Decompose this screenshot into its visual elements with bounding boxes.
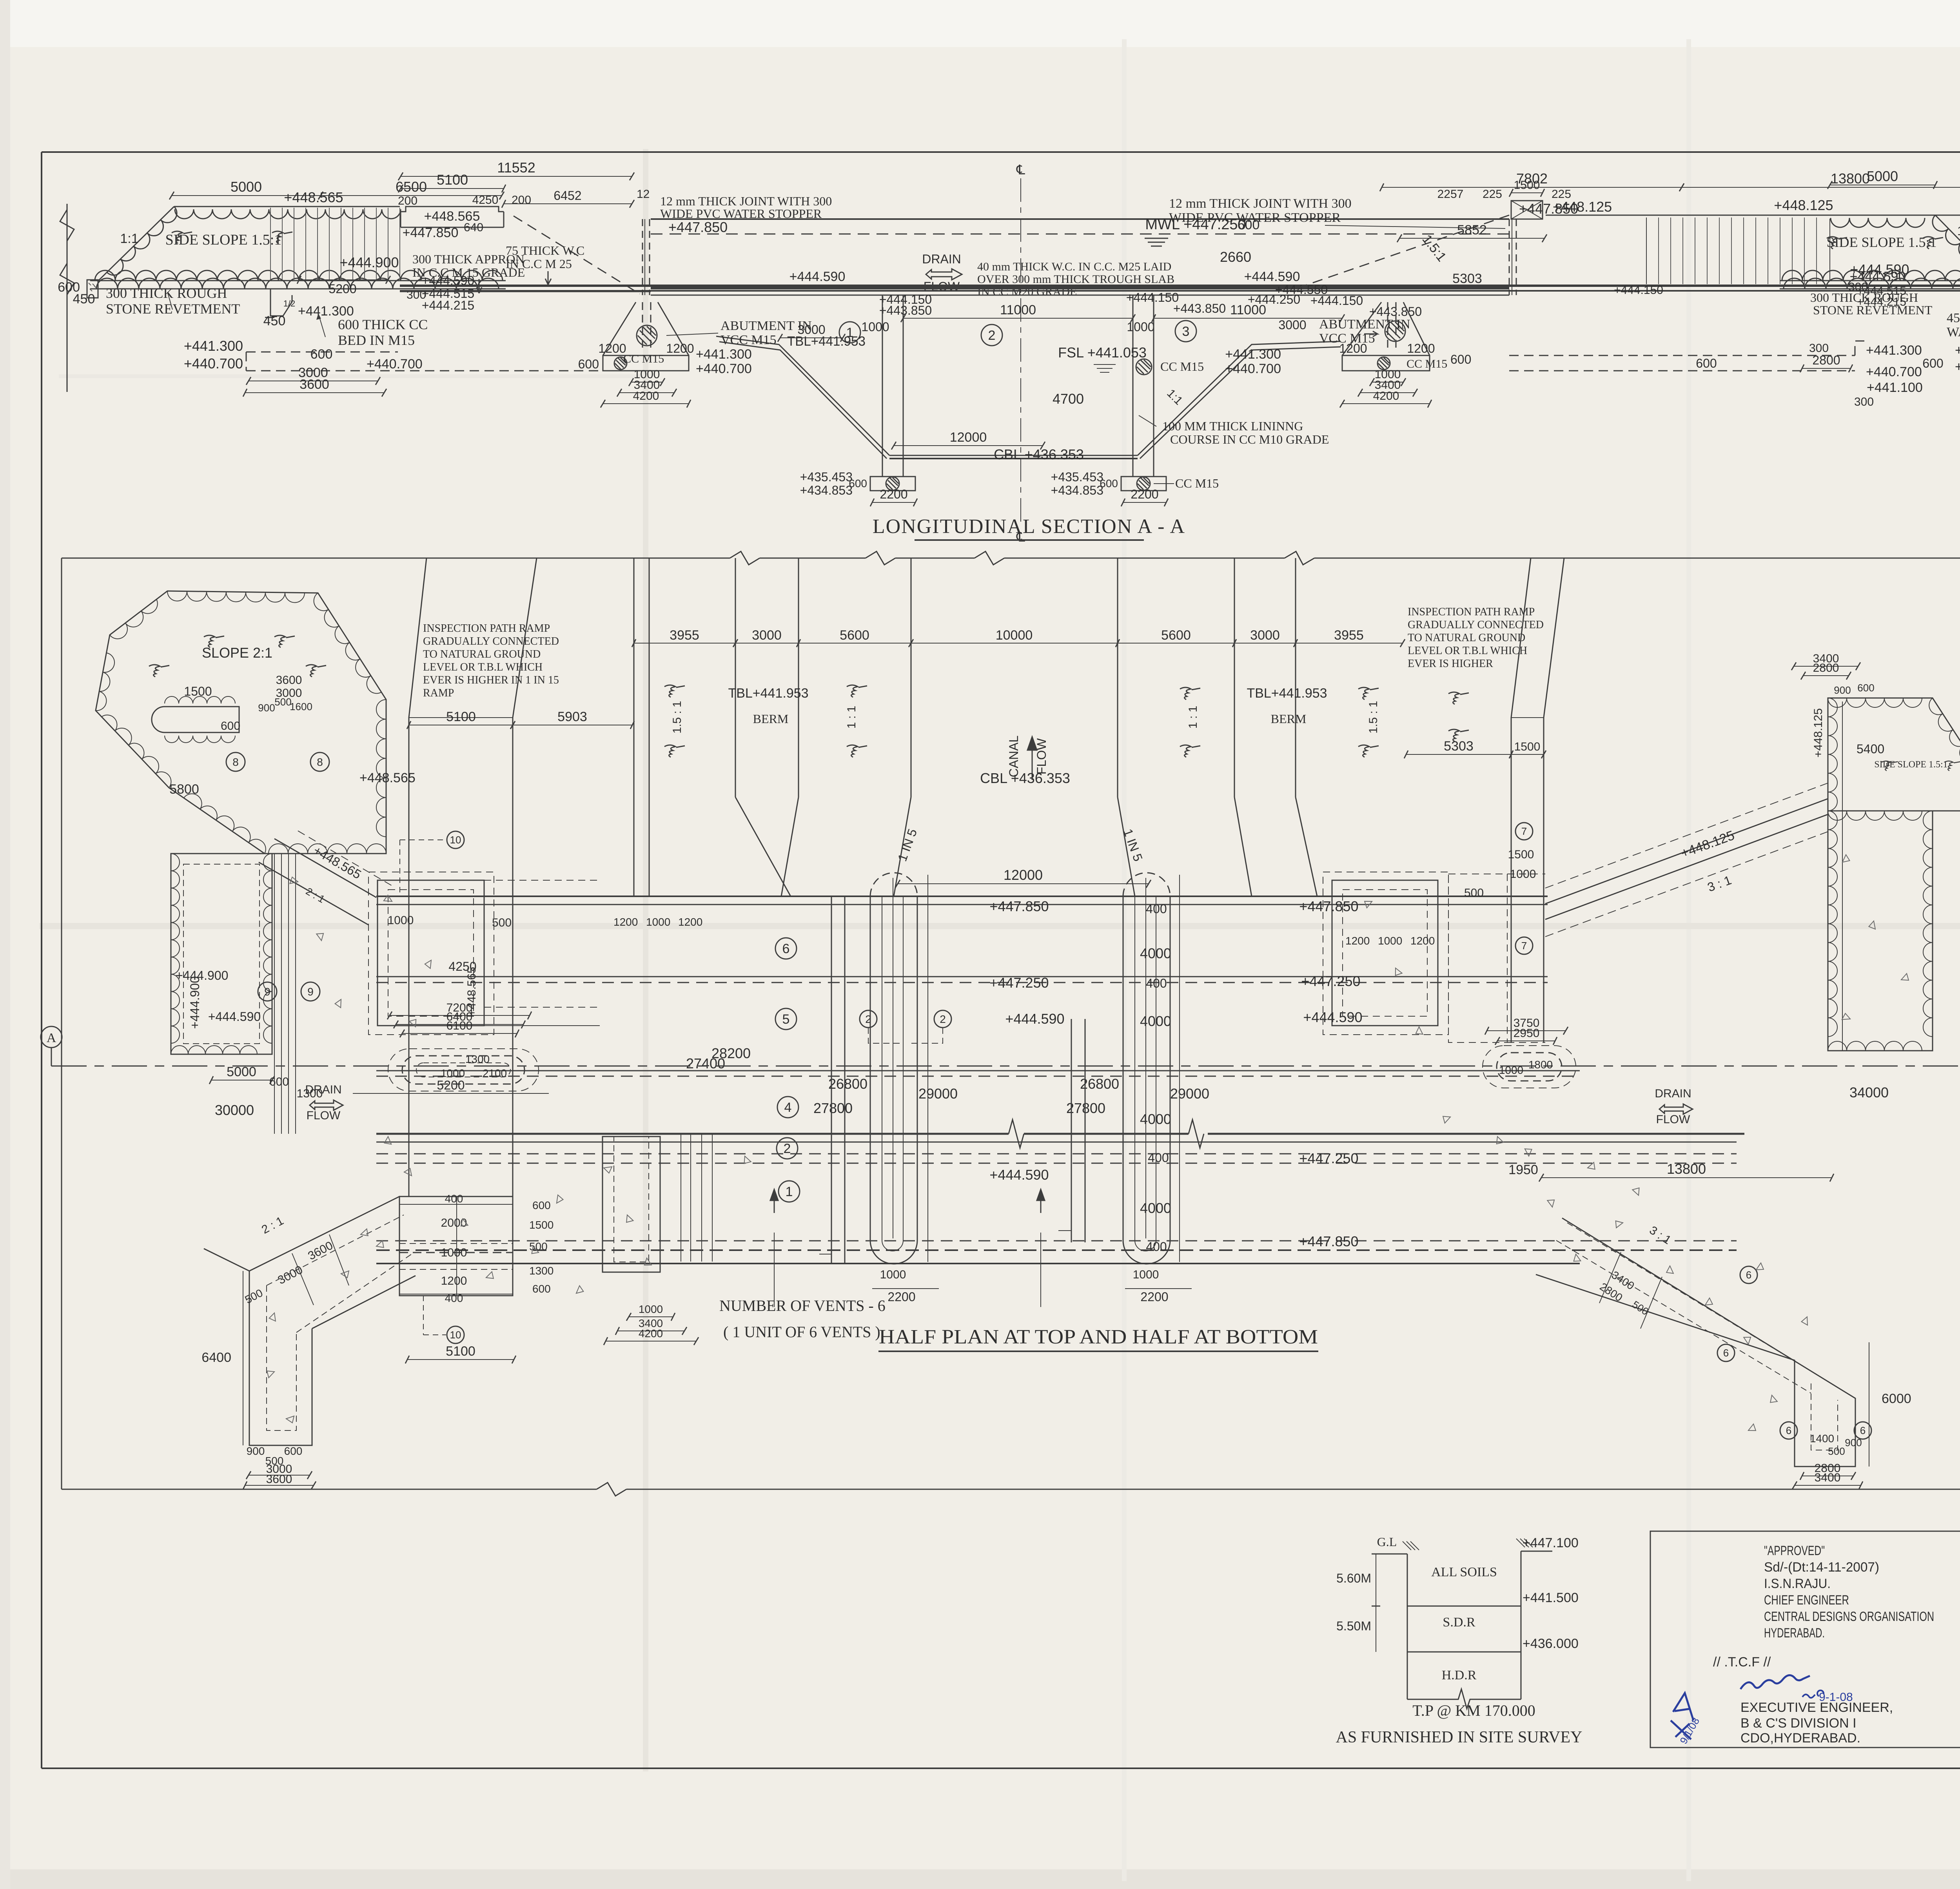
svg-text:COURSE IN CC M10 GRADE: COURSE IN CC M10 GRADE [1170, 432, 1329, 446]
svg-text:1500: 1500 [184, 684, 212, 698]
svg-text:1300: 1300 [529, 1265, 554, 1277]
svg-text:1 : 1: 1 : 1 [845, 706, 858, 729]
svg-text:1000: 1000 [880, 1268, 906, 1281]
svg-text:1500: 1500 [529, 1219, 554, 1231]
svg-text:+441.300: +441.300 [184, 338, 243, 354]
svg-text:10: 10 [450, 1329, 461, 1341]
svg-text:5.60M: 5.60M [1336, 1571, 1371, 1585]
svg-text:5000: 5000 [227, 1064, 256, 1079]
svg-text:600: 600 [269, 1075, 289, 1088]
svg-text:CC M15: CC M15 [1175, 476, 1219, 490]
svg-text:2660: 2660 [1220, 249, 1251, 265]
svg-text:1500: 1500 [1514, 740, 1541, 753]
svg-text:12000: 12000 [1004, 867, 1043, 883]
svg-text:600: 600 [578, 357, 599, 371]
svg-text:5: 5 [782, 1012, 790, 1027]
svg-text:LEVEL OR T.B.L WHICH: LEVEL OR T.B.L WHICH [423, 661, 543, 673]
svg-text:+447.850: +447.850 [1299, 898, 1358, 914]
svg-text:INSPECTION PATH RAMP: INSPECTION PATH RAMP [423, 622, 550, 635]
svg-text:1.5 : 1: 1.5 : 1 [671, 701, 684, 733]
svg-text:1:1: 1:1 [1957, 224, 1960, 238]
svg-text:1000: 1000 [861, 320, 889, 334]
svg-text:8: 8 [232, 756, 239, 768]
svg-text:10: 10 [450, 834, 461, 846]
svg-text:3600: 3600 [276, 674, 302, 687]
svg-text:OVER 300 mm THICK TROUGH SLAB: OVER 300 mm THICK TROUGH SLAB [977, 273, 1174, 286]
svg-text:400: 400 [1148, 1151, 1169, 1165]
svg-text:+448.125: +448.125 [1774, 197, 1833, 213]
svg-text:1000: 1000 [1378, 935, 1402, 947]
svg-text:1200: 1200 [666, 341, 694, 355]
svg-text:600: 600 [1922, 356, 1943, 370]
svg-text:SIDE SLOPE 1.5:1: SIDE SLOPE 1.5:1 [165, 232, 282, 248]
svg-text:+448.565: +448.565 [284, 189, 343, 205]
svg-text:FLOW: FLOW [1034, 738, 1049, 774]
svg-text:600: 600 [284, 1445, 303, 1457]
svg-text:5303: 5303 [1444, 739, 1474, 754]
svg-text:4200: 4200 [639, 1327, 663, 1340]
svg-text:LONGITUDINAL SECTION A - A: LONGITUDINAL SECTION A - A [873, 515, 1185, 538]
svg-text:+444.590: +444.590 [989, 1167, 1049, 1183]
svg-text:26800: 26800 [1080, 1076, 1119, 1092]
svg-text:FLOW: FLOW [307, 1109, 341, 1122]
svg-text:CC M15: CC M15 [623, 352, 664, 365]
svg-text:4700: 4700 [1053, 391, 1084, 407]
svg-text:4250: 4250 [472, 194, 499, 207]
svg-text:3000: 3000 [1250, 628, 1280, 643]
svg-text:// .T.C.F //: // .T.C.F // [1713, 1655, 1771, 1670]
svg-text:500: 500 [1464, 886, 1484, 899]
svg-text:BED IN M15: BED IN M15 [338, 332, 415, 348]
svg-text:5800: 5800 [169, 782, 199, 797]
svg-text:1300: 1300 [465, 1053, 490, 1065]
svg-text:6: 6 [1786, 1425, 1791, 1436]
svg-text:1500: 1500 [1508, 848, 1534, 861]
svg-text:ABUTMENT IN: ABUTMENT IN [720, 319, 812, 333]
svg-text:26800: 26800 [828, 1076, 867, 1092]
svg-text:SLOPE 2:1: SLOPE 2:1 [202, 645, 272, 661]
svg-text:+447.100: +447.100 [1523, 1535, 1579, 1550]
svg-text:VCC M15: VCC M15 [720, 333, 777, 347]
svg-text:+440.700: +440.700 [367, 357, 423, 372]
svg-text:1000: 1000 [639, 1303, 663, 1315]
svg-text:6100: 6100 [446, 1019, 473, 1032]
svg-text:1200: 1200 [598, 341, 626, 355]
svg-text:1200: 1200 [1410, 935, 1435, 947]
svg-text:450: 450 [73, 292, 95, 306]
svg-text:3955: 3955 [670, 628, 699, 643]
svg-text:+440.700: +440.700 [184, 355, 243, 372]
svg-text:1300: 1300 [297, 1087, 323, 1100]
svg-text:7: 7 [1521, 825, 1527, 837]
svg-text:1000: 1000 [441, 1067, 465, 1079]
svg-text:+440.700: +440.700 [1225, 361, 1281, 376]
svg-text:2200: 2200 [1131, 487, 1158, 501]
svg-text:+435.453: +435.453 [800, 470, 853, 484]
svg-text:600: 600 [310, 347, 333, 362]
svg-text:2000: 2000 [441, 1216, 467, 1229]
svg-text:Sd/-(Dt:14-11-2007): Sd/-(Dt:14-11-2007) [1764, 1560, 1879, 1575]
svg-text:900: 900 [247, 1445, 265, 1457]
svg-text:600: 600 [532, 1199, 551, 1211]
svg-text:1000: 1000 [1133, 1268, 1159, 1281]
svg-text:900: 900 [258, 702, 275, 714]
svg-text:+441.300: +441.300 [1955, 343, 1960, 358]
svg-text:1:1: 1:1 [120, 231, 138, 246]
svg-text:AS FURNISHED IN SITE SURVEY: AS FURNISHED IN SITE SURVEY [1336, 1728, 1582, 1746]
svg-text:5600: 5600 [1161, 628, 1191, 643]
svg-text:ABUTMENT IN: ABUTMENT IN [1319, 317, 1410, 332]
svg-text:+441.300: +441.300 [1866, 343, 1922, 358]
svg-text:2950: 2950 [1514, 1027, 1540, 1040]
svg-text:5100: 5100 [446, 709, 476, 724]
svg-text:G.L: G.L [1377, 1535, 1397, 1549]
svg-text:2200: 2200 [1140, 1290, 1168, 1304]
svg-text:+447.850: +447.850 [989, 898, 1049, 914]
svg-text:2800: 2800 [1813, 662, 1839, 674]
svg-text:SIDE SLOPE 1.5:1: SIDE SLOPE 1.5:1 [1826, 234, 1936, 250]
svg-text:+444.590: +444.590 [208, 1010, 261, 1024]
svg-text:+444.150: +444.150 [1126, 290, 1179, 305]
svg-text:LEVEL OR T.B.L WHICH: LEVEL OR T.B.L WHICH [1408, 645, 1527, 657]
svg-text:+444.900: +444.900 [188, 976, 202, 1029]
svg-text:1200: 1200 [1407, 341, 1435, 355]
svg-text:6500: 6500 [396, 179, 427, 195]
svg-text:11000: 11000 [1230, 303, 1266, 317]
svg-text:4200: 4200 [1373, 390, 1399, 402]
svg-text:IN C.C M 25: IN C.C M 25 [506, 257, 572, 271]
svg-text:INSPECTION PATH RAMP: INSPECTION PATH RAMP [1408, 606, 1535, 618]
svg-text:11552: 11552 [497, 160, 535, 176]
svg-text:6000: 6000 [1882, 1391, 1911, 1406]
svg-text:2: 2 [940, 1013, 946, 1025]
svg-text:+444.590: +444.590 [1303, 1009, 1362, 1025]
svg-text:5852: 5852 [1457, 223, 1487, 237]
svg-text:12 mm THICK JOINT WITH 300: 12 mm THICK JOINT WITH 300 [1169, 196, 1352, 211]
svg-text:+447.850: +447.850 [1299, 1233, 1358, 1249]
svg-text:1200: 1200 [1345, 935, 1370, 947]
svg-text:6452: 6452 [554, 189, 581, 203]
svg-text:1200: 1200 [1339, 341, 1367, 355]
svg-text:STONE REVETMENT: STONE REVETMENT [1813, 303, 1933, 317]
svg-text:5600: 5600 [840, 628, 869, 643]
svg-text:2100: 2100 [483, 1067, 507, 1079]
svg-text:450: 450 [263, 314, 286, 328]
svg-text:+447.250: +447.250 [1299, 1150, 1358, 1166]
svg-text:3400: 3400 [1815, 1471, 1841, 1484]
svg-text:STONE REVETMENT: STONE REVETMENT [106, 301, 240, 317]
svg-text:13800: 13800 [1667, 1161, 1706, 1177]
svg-text:TBL+441.953: TBL+441.953 [728, 686, 808, 701]
svg-text:5200: 5200 [437, 1078, 465, 1092]
svg-text:1000: 1000 [441, 1246, 467, 1259]
svg-text:+447.250: +447.250 [989, 975, 1049, 991]
svg-text:5303: 5303 [1452, 271, 1482, 286]
svg-text:NUMBER OF VENTS - 6: NUMBER OF VENTS - 6 [719, 1297, 886, 1314]
svg-text:2: 2 [784, 1141, 791, 1156]
svg-text:500: 500 [1828, 1445, 1845, 1457]
svg-text:40 mm THICK W.C. IN C.C. M25 L: 40 mm THICK W.C. IN C.C. M25 LAID [977, 260, 1171, 273]
svg-text:+440.700: +440.700 [1866, 364, 1922, 379]
svg-text:+444.900: +444.900 [176, 968, 228, 983]
svg-text:900: 900 [1834, 684, 1851, 696]
svg-text:+434.853: +434.853 [1051, 483, 1103, 497]
svg-text:B & C'S DIVISION I: B & C'S DIVISION I [1740, 1716, 1857, 1731]
svg-text:CENTRAL DESIGNS ORGANISATION: CENTRAL DESIGNS ORGANISATION [1764, 1609, 1934, 1624]
svg-text:500: 500 [492, 916, 512, 929]
svg-text:600 THICK CC: 600 THICK CC [338, 317, 428, 332]
svg-text:7: 7 [1521, 940, 1527, 952]
svg-text:+441.100: +441.100 [1867, 380, 1923, 395]
svg-text:DRAIN: DRAIN [922, 252, 961, 266]
svg-text:300 THICK ROUGH: 300 THICK ROUGH [106, 285, 227, 301]
svg-text:3955: 3955 [1334, 628, 1364, 643]
svg-text:+444.590: +444.590 [789, 269, 846, 284]
svg-text:600: 600 [849, 477, 867, 489]
svg-text:1200: 1200 [441, 1274, 467, 1287]
svg-text:1950: 1950 [1508, 1162, 1538, 1177]
svg-text:+440.700: +440.700 [1955, 359, 1960, 374]
svg-text:5000: 5000 [230, 179, 262, 195]
svg-text:5100: 5100 [437, 172, 468, 188]
svg-text:8: 8 [317, 756, 323, 768]
svg-text:7802: 7802 [1516, 170, 1548, 187]
svg-text:( 1 UNIT OF 6 VENTS ): ( 1 UNIT OF 6 VENTS ) [723, 1323, 880, 1341]
svg-text:+436.000: +436.000 [1523, 1636, 1579, 1651]
svg-text:500: 500 [274, 696, 291, 708]
svg-text:12: 12 [637, 188, 650, 201]
svg-text:6: 6 [1746, 1269, 1751, 1281]
svg-text:450x600 CUT-OFF: 450x600 CUT-OFF [1947, 311, 1960, 325]
svg-text:5400: 5400 [1857, 742, 1884, 756]
svg-text:6: 6 [1860, 1425, 1866, 1436]
svg-text:27800: 27800 [1066, 1100, 1105, 1116]
svg-text:600: 600 [1696, 356, 1717, 370]
svg-text:30000: 30000 [215, 1102, 254, 1118]
svg-text:1600: 1600 [290, 701, 312, 712]
svg-text:1800: 1800 [1528, 1059, 1553, 1071]
svg-text:+441.300: +441.300 [696, 347, 752, 362]
svg-text:1: 1 [786, 1184, 793, 1199]
svg-text:1200: 1200 [613, 916, 638, 928]
svg-text:+448.125: +448.125 [1812, 708, 1825, 758]
svg-text:12000: 12000 [950, 430, 987, 445]
svg-text:1200: 1200 [678, 916, 702, 928]
svg-text:3600: 3600 [266, 1473, 292, 1486]
svg-text:600: 600 [1100, 477, 1118, 489]
svg-text:2: 2 [988, 328, 996, 343]
svg-text:200: 200 [398, 194, 417, 207]
svg-text:400: 400 [445, 1292, 463, 1304]
svg-text:I.S.N.RAJU.: I.S.N.RAJU. [1764, 1576, 1831, 1591]
svg-text:29000: 29000 [1170, 1086, 1209, 1102]
svg-text:1000: 1000 [1499, 1064, 1523, 1076]
svg-text:EVER IS HIGHER IN 1 IN 15: EVER IS HIGHER IN 1 IN 15 [423, 674, 559, 686]
svg-text:13800: 13800 [1831, 170, 1870, 187]
svg-text:ALL SOILS: ALL SOILS [1431, 1565, 1497, 1579]
svg-text:CBL +436.353: CBL +436.353 [994, 446, 1084, 462]
svg-text:+444.150: +444.150 [1310, 294, 1363, 308]
svg-text:+444.590: +444.590 [1244, 269, 1300, 284]
svg-text:T.P @ KM 170.000: T.P @ KM 170.000 [1412, 1702, 1535, 1719]
svg-text:+435.453: +435.453 [1051, 470, 1103, 484]
svg-text:+444.150: +444.150 [1614, 284, 1663, 297]
svg-text:3600: 3600 [299, 377, 329, 392]
svg-text:RAMP: RAMP [423, 687, 454, 699]
svg-text:3: 3 [1182, 324, 1190, 339]
svg-text:640: 640 [464, 221, 483, 234]
svg-text:5100: 5100 [446, 1344, 475, 1359]
svg-text:FLOW: FLOW [1656, 1113, 1690, 1126]
svg-text:TO NATURAL GROUND: TO NATURAL GROUND [1408, 632, 1525, 644]
svg-text:1000: 1000 [646, 916, 670, 928]
svg-text:6400: 6400 [201, 1350, 231, 1365]
svg-text:BERM: BERM [1271, 712, 1307, 726]
svg-text:DRAIN: DRAIN [1655, 1087, 1691, 1100]
svg-text:BERM: BERM [753, 712, 789, 726]
svg-text:+444.590: +444.590 [1850, 261, 1909, 277]
svg-text:+440.700: +440.700 [696, 361, 752, 376]
svg-text:300: 300 [1809, 342, 1829, 355]
svg-text:300 THICK ROUGH: 300 THICK ROUGH [1810, 290, 1918, 305]
svg-text:H.D.R: H.D.R [1442, 1668, 1477, 1682]
svg-text:+443.850: +443.850 [1173, 301, 1226, 315]
svg-text:TBL+441.953: TBL+441.953 [1247, 686, 1327, 701]
svg-text:5200: 5200 [328, 282, 356, 296]
svg-text:2200: 2200 [880, 487, 907, 501]
svg-text:6: 6 [782, 941, 790, 956]
svg-text:2800: 2800 [1812, 353, 1840, 367]
svg-text:12 mm THICK JOINT WITH 300: 12 mm THICK JOINT WITH 300 [660, 194, 832, 208]
svg-text:+448.565: +448.565 [359, 770, 416, 785]
svg-text:1000: 1000 [1127, 320, 1154, 334]
svg-text:1000: 1000 [388, 914, 414, 927]
svg-text:+444.590: +444.590 [1005, 1011, 1064, 1027]
svg-text:+441.300: +441.300 [1225, 347, 1281, 362]
svg-text:600: 600 [532, 1283, 551, 1295]
svg-text:WIDE PVC WATER STOPPER: WIDE PVC WATER STOPPER [1169, 210, 1341, 225]
svg-text:EVER IS HIGHER: EVER IS HIGHER [1408, 658, 1493, 670]
svg-text:400: 400 [1146, 1240, 1167, 1254]
svg-text:11000: 11000 [1000, 303, 1036, 317]
svg-text:300: 300 [1854, 395, 1874, 408]
svg-text:"APPROVED": "APPROVED" [1764, 1543, 1825, 1558]
svg-text:WALL IN CC M10: WALL IN CC M10 [1947, 325, 1960, 339]
svg-text:FSL +441.053: FSL +441.053 [1058, 344, 1147, 361]
svg-text:+448.125: +448.125 [1553, 199, 1612, 215]
svg-text:600: 600 [1450, 352, 1471, 366]
svg-text:27400: 27400 [686, 1055, 725, 1071]
svg-text:29000: 29000 [918, 1086, 958, 1102]
svg-text:600: 600 [1857, 682, 1874, 694]
svg-text:CC M15: CC M15 [1160, 359, 1204, 373]
svg-text:CHIEF ENGINEER: CHIEF ENGINEER [1764, 1593, 1849, 1608]
svg-text:GRADUALLY CONNECTED: GRADUALLY CONNECTED [423, 635, 559, 647]
svg-text:℄: ℄ [1016, 163, 1025, 178]
svg-text:+444.215: +444.215 [422, 298, 474, 312]
svg-text:A: A [47, 1031, 56, 1045]
svg-text:2257: 2257 [1437, 188, 1464, 201]
svg-text:5.50M: 5.50M [1336, 1619, 1371, 1633]
svg-text:100 MM THICK LININNG: 100 MM THICK LININNG [1162, 419, 1303, 433]
svg-text:5903: 5903 [557, 709, 587, 724]
svg-text:34000: 34000 [1849, 1084, 1889, 1100]
svg-text:+447.850: +447.850 [403, 225, 459, 240]
svg-text:CC M15: CC M15 [1406, 357, 1447, 370]
svg-text:+434.853: +434.853 [800, 483, 853, 497]
svg-text:2200: 2200 [887, 1290, 915, 1304]
svg-text:HALF PLAN AT TOP AND HALF AT B: HALF PLAN AT TOP AND HALF AT BOTTOM [879, 1326, 1318, 1348]
svg-text:5000: 5000 [1867, 168, 1898, 184]
svg-text:6: 6 [1723, 1347, 1729, 1359]
svg-text:S.D.R: S.D.R [1443, 1615, 1475, 1630]
svg-text:10000: 10000 [996, 628, 1033, 643]
svg-text:EXECUTIVE ENGINEER,: EXECUTIVE ENGINEER, [1740, 1700, 1893, 1715]
svg-text:CDO,HYDERABAD.: CDO,HYDERABAD. [1740, 1731, 1860, 1746]
svg-text:400: 400 [445, 1193, 463, 1205]
svg-text:+444.900: +444.900 [339, 254, 399, 270]
svg-text:1400: 1400 [1810, 1432, 1834, 1445]
svg-text:200: 200 [512, 194, 531, 207]
svg-text:+447.850: +447.850 [668, 219, 728, 235]
svg-text:HYDERABAD.: HYDERABAD. [1764, 1626, 1825, 1641]
svg-text:4200: 4200 [633, 390, 659, 402]
svg-text:CBL +436.353: CBL +436.353 [980, 770, 1070, 786]
svg-text:+447.250: +447.250 [1301, 973, 1360, 989]
svg-text:900: 900 [1845, 1437, 1862, 1448]
svg-text:1/2: 1/2 [283, 299, 296, 308]
svg-text:3000: 3000 [1278, 318, 1306, 332]
svg-text:4: 4 [784, 1100, 792, 1115]
svg-text:225: 225 [1483, 188, 1502, 201]
svg-text:+441.500: +441.500 [1523, 1590, 1579, 1605]
svg-text:9: 9 [264, 986, 270, 998]
svg-text:27800: 27800 [813, 1100, 853, 1116]
svg-text:9: 9 [307, 986, 314, 998]
svg-text:1.5 : 1: 1.5 : 1 [1367, 701, 1380, 733]
svg-text:3000: 3000 [752, 628, 782, 643]
svg-text:75 THICK W.C: 75 THICK W.C [506, 243, 584, 257]
svg-text:600: 600 [221, 720, 240, 732]
svg-text:1 : 1: 1 : 1 [1187, 706, 1200, 729]
